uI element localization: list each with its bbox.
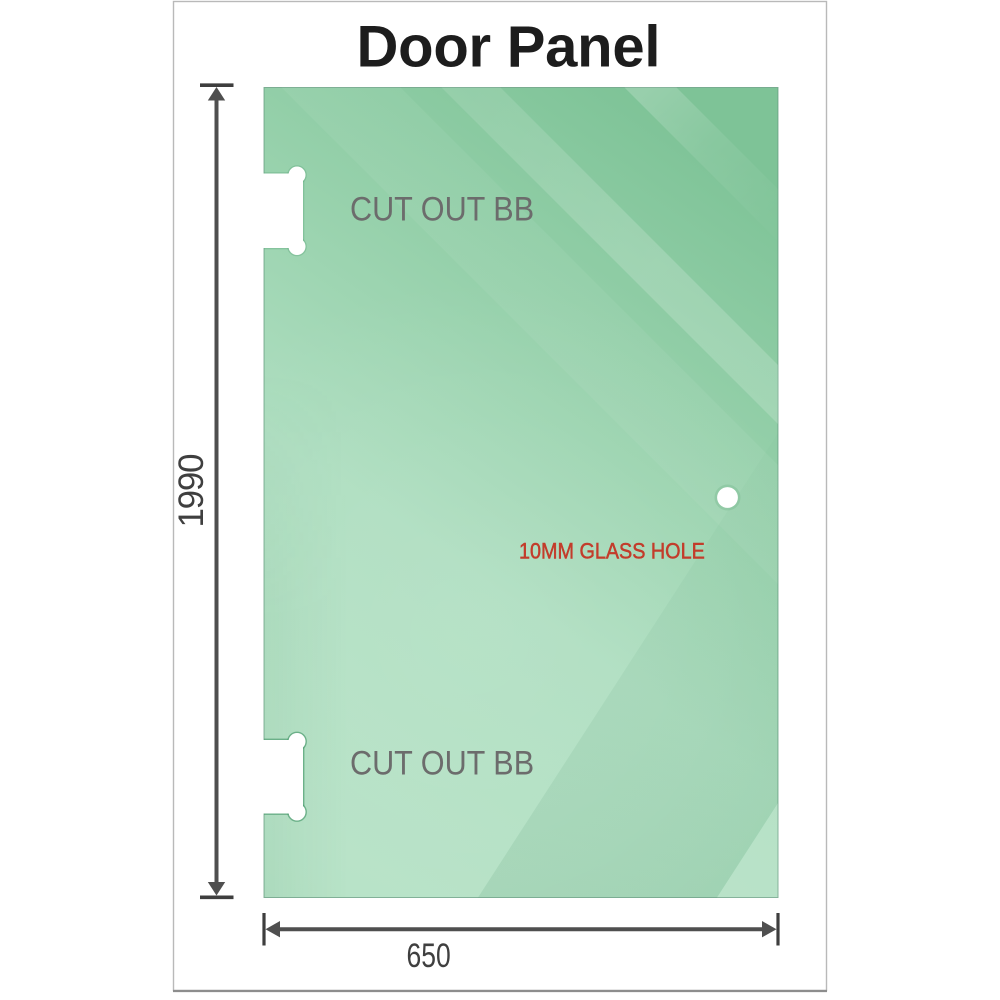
svg-text:650: 650 [407, 937, 451, 975]
svg-text:Door Panel: Door Panel [357, 15, 661, 80]
svg-text:10MM GLASS HOLE: 10MM GLASS HOLE [519, 540, 705, 564]
svg-text:CUT OUT BB: CUT OUT BB [350, 744, 534, 782]
svg-text:1990: 1990 [172, 454, 211, 528]
svg-text:CUT OUT BB: CUT OUT BB [350, 190, 534, 228]
